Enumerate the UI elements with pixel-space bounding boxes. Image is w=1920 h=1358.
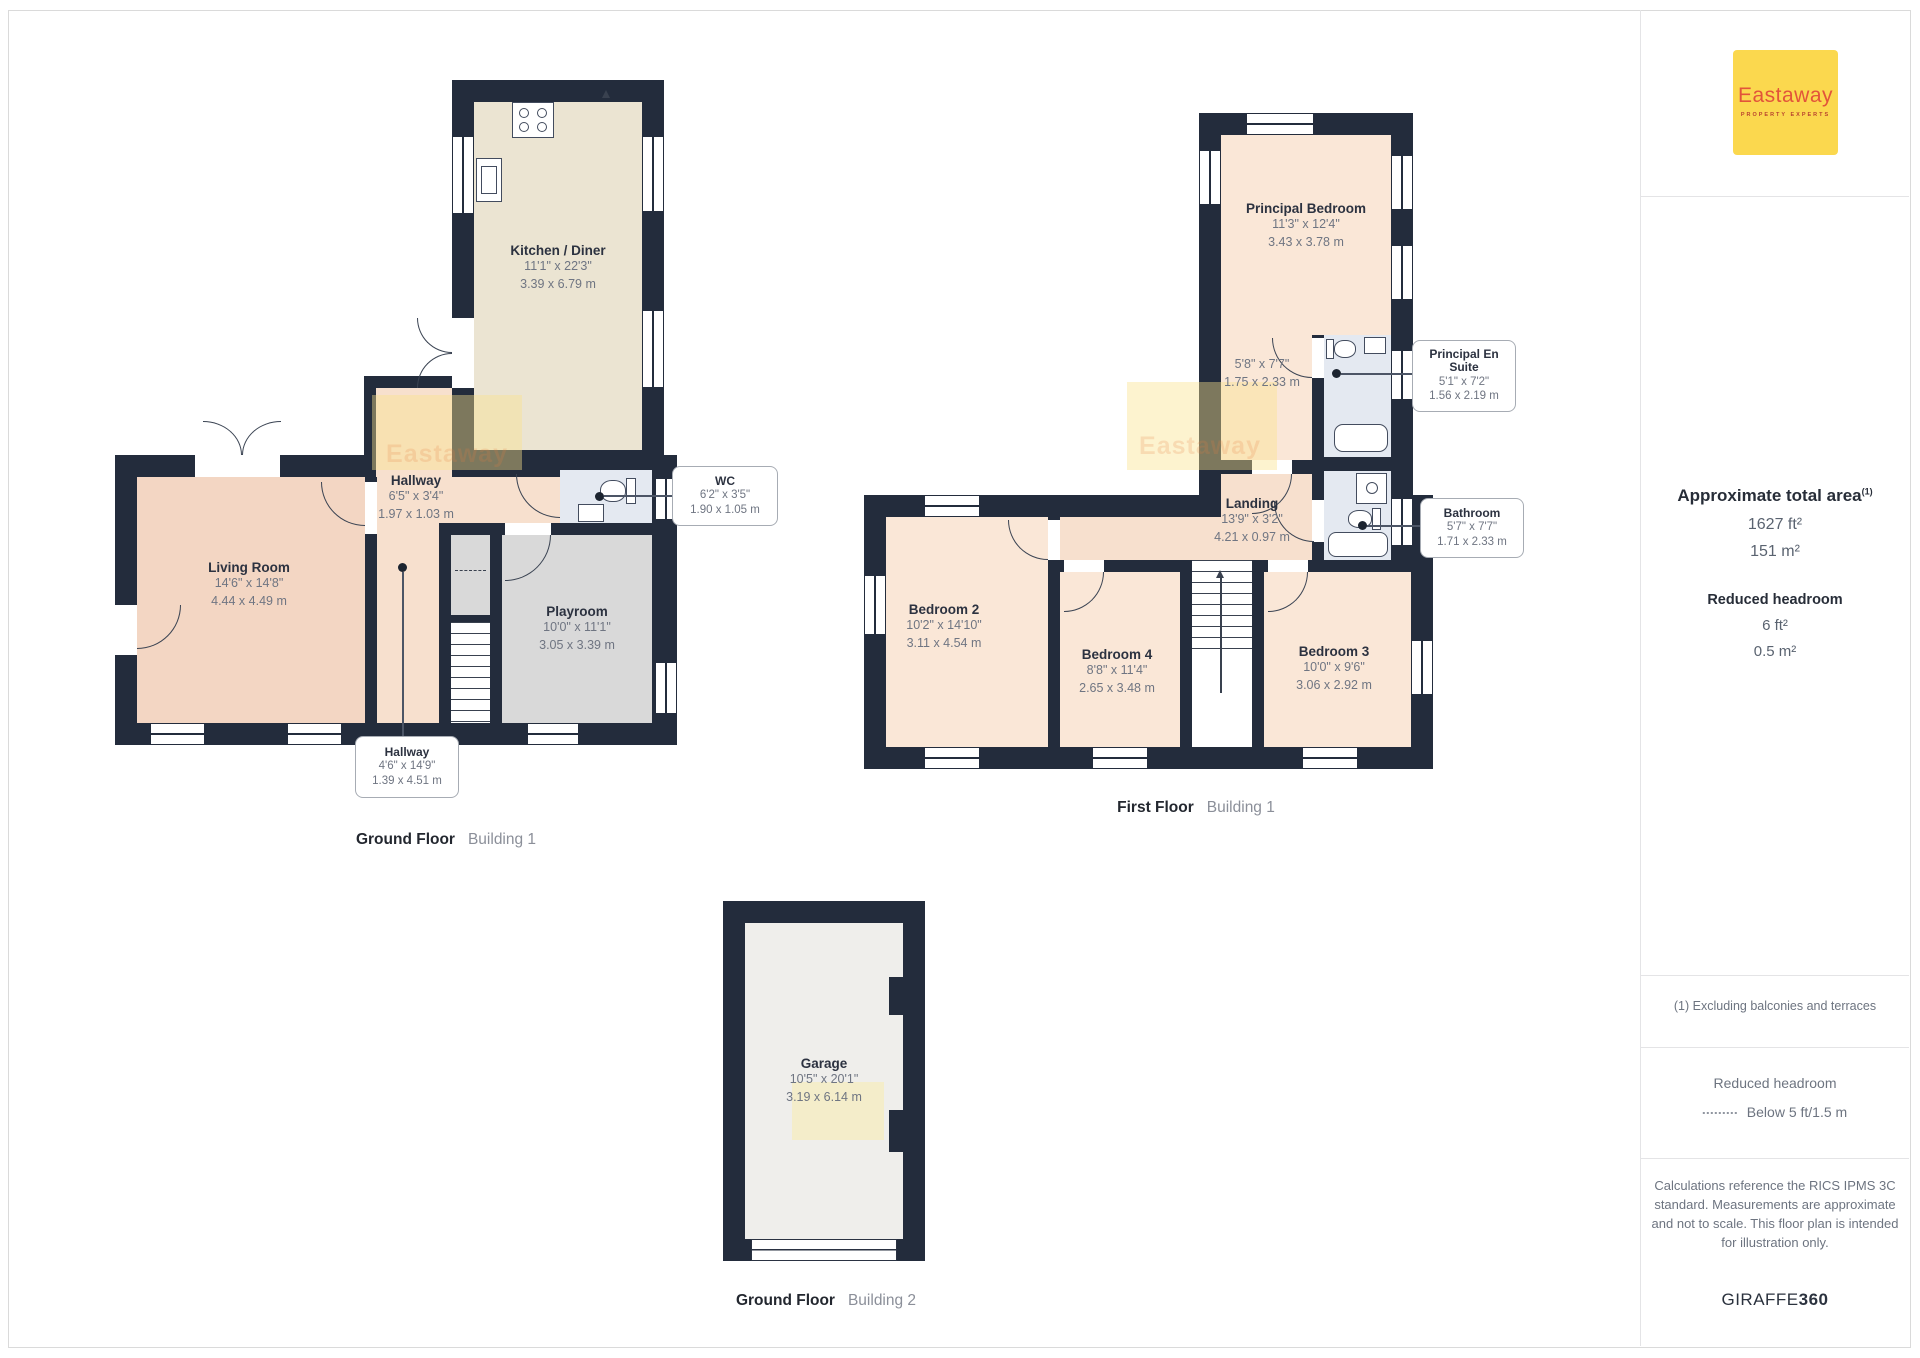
- floor-plan-page: Eastaway Kitchen / Diner 11'1" x 22'3" 3…: [0, 0, 1920, 1358]
- sidebar-divider: [1641, 196, 1909, 197]
- wall: [1324, 457, 1391, 471]
- room-name: Principal En Suite: [1417, 348, 1511, 375]
- room-dim-metric: 1.90 x 1.05 m: [677, 503, 773, 518]
- total-area-metric: 151 m²: [1750, 543, 1800, 561]
- brand-footer-name: GIRAFFE: [1721, 1290, 1798, 1309]
- legend-row: Below 5 ft/1.5 m: [1703, 1104, 1847, 1120]
- room-name: WC: [677, 475, 773, 488]
- room-dim-imperial: 5'8" x 7'7": [1224, 356, 1300, 374]
- room-label-bedroom2: Bedroom 2 10'2" x 14'10" 3.11 x 4.54 m: [906, 602, 982, 653]
- room-dim-imperial: 10'2" x 14'10": [906, 617, 982, 635]
- door-opening: [1048, 520, 1060, 560]
- room-name: Hallway: [360, 746, 454, 759]
- room-dim-metric: 3.19 x 6.14 m: [786, 1089, 862, 1107]
- wall: [439, 523, 451, 745]
- plan-title-main: First Floor: [1117, 799, 1194, 816]
- callout-leader: [402, 572, 404, 736]
- room-label-hallway: Hallway 6'5" x 3'4" 1.97 x 1.03 m: [378, 473, 454, 524]
- room-label-kitchen: Kitchen / Diner 11'1" x 22'3" 3.39 x 6.7…: [510, 243, 605, 294]
- room-dim-metric: 1.97 x 1.03 m: [378, 506, 454, 524]
- door-opening: [1064, 560, 1104, 572]
- room-dim-metric: 3.39 x 6.79 m: [510, 276, 605, 294]
- agency-logo-brand: Eastaway: [1733, 84, 1838, 108]
- door-opening: [365, 482, 377, 534]
- door-opening: [452, 318, 474, 388]
- room-dim-imperial: 10'5" x 20'1": [786, 1071, 862, 1089]
- room-dim-metric: 1.39 x 4.51 m: [360, 774, 454, 789]
- room-label-living: Living Room 14'6" x 14'8" 4.44 x 4.49 m: [208, 560, 290, 611]
- brand-footer-suffix: 360: [1799, 1290, 1829, 1309]
- shower-drain-icon: [1366, 482, 1378, 494]
- room-name: Bedroom 3: [1296, 644, 1372, 659]
- room-dim-metric: 3.43 x 3.78 m: [1246, 234, 1366, 252]
- stair-arrow: [1220, 578, 1222, 693]
- window: [1246, 113, 1314, 135]
- room-label-principal-bedroom: Principal Bedroom 11'3" x 12'4" 3.43 x 3…: [1246, 201, 1366, 252]
- room-dim-imperial: 10'0" x 9'6": [1296, 659, 1372, 677]
- room-dim-metric: 2.65 x 3.48 m: [1079, 680, 1155, 698]
- bathroom-bath-icon: [1328, 532, 1388, 557]
- callout-dot: [595, 492, 604, 501]
- window: [642, 136, 664, 212]
- plan-title-main: Ground Floor: [736, 1292, 835, 1309]
- toilet-icon: [600, 480, 626, 502]
- door-opening: [505, 523, 551, 535]
- room-label-landing: Landing 13'9" x 3'2" 4.21 x 0.97 m: [1214, 496, 1290, 547]
- callout-wc: WC 6'2" x 3'5" 1.90 x 1.05 m: [672, 466, 778, 526]
- window: [924, 747, 980, 769]
- callout-leader: [1341, 373, 1412, 375]
- callout-dot: [1358, 521, 1367, 530]
- room-dim-imperial: 11'3" x 12'4": [1246, 216, 1366, 234]
- sidebar-left-border: [1640, 10, 1641, 1346]
- landing-corridor: [1060, 517, 1221, 560]
- room-dim-imperial: 5'7" x 7'7": [1425, 520, 1519, 535]
- window: [1391, 350, 1413, 400]
- watermark-text: Eastaway: [386, 440, 508, 469]
- kitchen-sink-basin-icon: [481, 166, 497, 194]
- wall: [439, 523, 677, 535]
- en-suite-bath-icon: [1334, 424, 1388, 452]
- staircase: [451, 622, 490, 723]
- wall: [1252, 560, 1264, 747]
- plan-title-first-floor-b1: First FloorBuilding 1: [1117, 799, 1275, 817]
- room-name: Principal Bedroom: [1246, 201, 1366, 216]
- stair-arrow-head-icon: [1216, 570, 1224, 578]
- door-opening: [115, 605, 137, 655]
- room-dim-imperial: 4'6" x 14'9": [360, 759, 454, 774]
- hob-burner-icon: [537, 122, 547, 132]
- wc-sink-icon: [578, 504, 604, 522]
- agency-logo: Eastaway PROPERTY EXPERTS: [1733, 50, 1838, 155]
- window: [1391, 155, 1413, 210]
- callout-hallway: Hallway 4'6" x 14'9" 1.39 x 4.51 m: [355, 736, 459, 798]
- room-dim-imperial: 10'0" x 11'1": [539, 619, 615, 637]
- brand-footer: GIRAFFE360: [1721, 1290, 1828, 1310]
- room-dim-imperial: 13'9" x 3'2": [1214, 511, 1290, 529]
- hob-burner-icon: [519, 108, 529, 118]
- toilet-tank-icon: [626, 478, 636, 504]
- hob-burner-icon: [537, 108, 547, 118]
- window: [1391, 498, 1413, 546]
- headroom-dashed-line: [455, 570, 486, 571]
- sidebar-divider: [1641, 1047, 1909, 1048]
- room-label-bedroom3: Bedroom 3 10'0" x 9'6" 3.06 x 2.92 m: [1296, 644, 1372, 695]
- sidebar-divider: [1641, 975, 1909, 976]
- room-dim-imperial: 6'5" x 3'4": [378, 488, 454, 506]
- wall: [490, 535, 502, 723]
- sidebar-divider: [1641, 1158, 1909, 1159]
- window: [1391, 245, 1413, 300]
- window: [655, 662, 677, 714]
- room-name: Living Room: [208, 560, 290, 575]
- door-opening: [1268, 560, 1308, 572]
- dotted-line-icon: [1703, 1112, 1737, 1114]
- room-dim-imperial: 11'1" x 22'3": [510, 258, 605, 276]
- en-suite-sink-icon: [1364, 337, 1386, 354]
- disclaimer: Calculations reference the RICS IPMS 3C …: [1650, 1176, 1900, 1252]
- plan-title-sub: Building 1: [1207, 799, 1275, 816]
- north-arrow-icon: [602, 90, 610, 98]
- room-dim-imperial: 8'8" x 11'4": [1079, 662, 1155, 680]
- window: [864, 575, 886, 635]
- callout-principal-en-suite: Principal En Suite 5'1" x 7'2" 1.56 x 2.…: [1412, 340, 1516, 412]
- window: [527, 723, 579, 745]
- plan-title-ground-floor-b2: Ground FloorBuilding 2: [736, 1292, 916, 1310]
- room-dim-imperial: 14'6" x 14'8": [208, 575, 290, 593]
- plan-title-main: Ground Floor: [356, 831, 455, 848]
- window: [924, 495, 980, 517]
- room-label-bedroom4: Bedroom 4 8'8" x 11'4" 2.65 x 3.48 m: [1079, 647, 1155, 698]
- footnote-marker: (1): [1862, 486, 1873, 496]
- callout-leader: [604, 495, 672, 497]
- window: [1411, 640, 1433, 695]
- wall: [1180, 560, 1192, 747]
- callout-dot: [1332, 369, 1341, 378]
- room-name: Garage: [786, 1056, 862, 1071]
- watermark-text: Eastaway: [1139, 432, 1261, 461]
- closet-room: [451, 535, 490, 615]
- room-label-principal-bedroom-sub: 5'8" x 7'7" 1.75 x 2.33 m: [1224, 356, 1300, 392]
- room-dim-metric: 1.71 x 2.33 m: [1425, 535, 1519, 550]
- plan-title-ground-floor-b1: Ground FloorBuilding 1: [356, 831, 536, 849]
- callout-bathroom: Bathroom 5'7" x 7'7" 1.71 x 2.33 m: [1420, 498, 1524, 558]
- wall-pier: [889, 1110, 925, 1152]
- reduced-headroom-heading: Reduced headroom: [1707, 592, 1842, 608]
- plan-title-sub: Building 2: [848, 1292, 916, 1309]
- wall-pier: [889, 977, 925, 1015]
- room-name: Hallway: [378, 473, 454, 488]
- room-name: Playroom: [539, 604, 615, 619]
- room-dim-metric: 3.06 x 2.92 m: [1296, 677, 1372, 695]
- callout-dot: [398, 563, 407, 572]
- garage-door: [751, 1239, 897, 1261]
- room-name: Bedroom 2: [906, 602, 982, 617]
- window: [150, 723, 205, 745]
- total-area-imperial: 1627 ft²: [1748, 516, 1802, 534]
- room-name: Landing: [1214, 496, 1290, 511]
- plan-title-sub: Building 1: [468, 831, 536, 848]
- agency-logo-tagline: PROPERTY EXPERTS: [1733, 112, 1838, 118]
- hob-burner-icon: [519, 122, 529, 132]
- hob-icon: [512, 102, 554, 138]
- total-area-heading: Approximate total area(1): [1677, 486, 1872, 506]
- en-suite-toilet-tank-icon: [1326, 339, 1334, 359]
- room-dim-metric: 4.44 x 4.49 m: [208, 593, 290, 611]
- room-dim-imperial: 5'1" x 7'2": [1417, 375, 1511, 390]
- room-label-playroom: Playroom 10'0" x 11'1" 3.05 x 3.39 m: [539, 604, 615, 655]
- window: [287, 723, 342, 745]
- bathroom-toilet-tank-icon: [1372, 508, 1381, 530]
- wall: [451, 615, 490, 622]
- reduced-headroom-imperial: 6 ft²: [1762, 617, 1788, 634]
- door-opening: [1312, 338, 1324, 378]
- room-dim-metric: 3.11 x 4.54 m: [906, 635, 982, 653]
- room-label-garage: Garage 10'5" x 20'1" 3.19 x 6.14 m: [786, 1056, 862, 1107]
- window: [452, 136, 474, 214]
- window: [1199, 150, 1221, 205]
- legend-title: Reduced headroom: [1714, 1075, 1837, 1091]
- reduced-headroom-metric: 0.5 m²: [1754, 643, 1797, 660]
- room-dim-metric: 3.05 x 3.39 m: [539, 637, 615, 655]
- window: [642, 310, 664, 388]
- window: [1302, 747, 1358, 769]
- door-opening: [195, 455, 280, 477]
- window: [1092, 747, 1148, 769]
- room-name: Bedroom 4: [1079, 647, 1155, 662]
- legend-item: Below 5 ft/1.5 m: [1747, 1104, 1847, 1120]
- room-dim-metric: 4.21 x 0.97 m: [1214, 529, 1290, 547]
- room-name: Kitchen / Diner: [510, 243, 605, 258]
- room-name: Bathroom: [1425, 507, 1519, 520]
- room-dim-metric: 1.75 x 2.33 m: [1224, 374, 1300, 392]
- room-dim-imperial: 6'2" x 3'5": [677, 488, 773, 503]
- wall: [1324, 560, 1391, 572]
- area-footnote: (1) Excluding balconies and terraces: [1674, 999, 1876, 1013]
- total-area-heading-text: Approximate total area: [1677, 486, 1861, 505]
- en-suite-toilet-icon: [1334, 340, 1356, 358]
- room-dim-metric: 1.56 x 2.19 m: [1417, 389, 1511, 404]
- callout-leader: [1367, 525, 1420, 527]
